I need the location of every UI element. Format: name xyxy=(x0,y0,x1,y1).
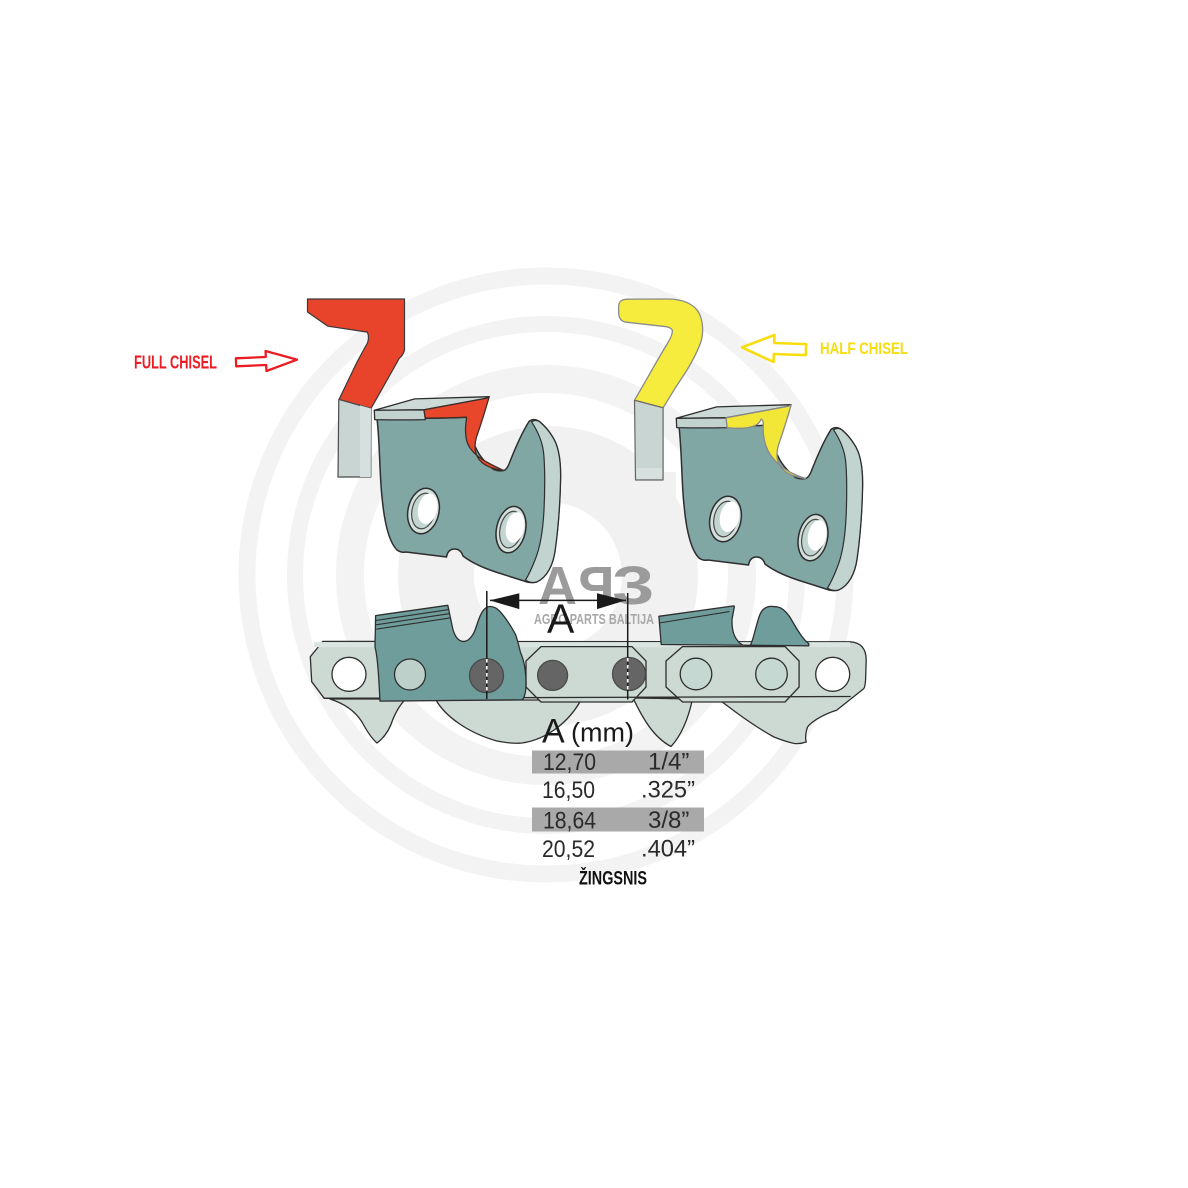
svg-text:A: A xyxy=(547,596,575,642)
svg-text:16,50: 16,50 xyxy=(542,777,595,804)
svg-text:HALF CHISEL: HALF CHISEL xyxy=(820,340,908,358)
svg-text:3/8”: 3/8” xyxy=(648,807,689,834)
svg-text:.404”: .404” xyxy=(641,836,695,863)
svg-text:.325”: .325” xyxy=(641,777,695,804)
svg-text:20,52: 20,52 xyxy=(542,836,595,863)
svg-text:(mm): (mm) xyxy=(571,718,634,748)
svg-text:FULL CHISEL: FULL CHISEL xyxy=(134,353,217,373)
svg-text:1/4”: 1/4” xyxy=(648,749,689,776)
svg-text:12,70: 12,70 xyxy=(543,749,596,776)
svg-text:P: P xyxy=(578,556,614,616)
svg-text:A: A xyxy=(542,713,565,751)
svg-text:18,64: 18,64 xyxy=(543,808,596,835)
svg-text:3: 3 xyxy=(612,556,654,616)
svg-text:ŽINGSNIS: ŽINGSNIS xyxy=(579,868,647,890)
